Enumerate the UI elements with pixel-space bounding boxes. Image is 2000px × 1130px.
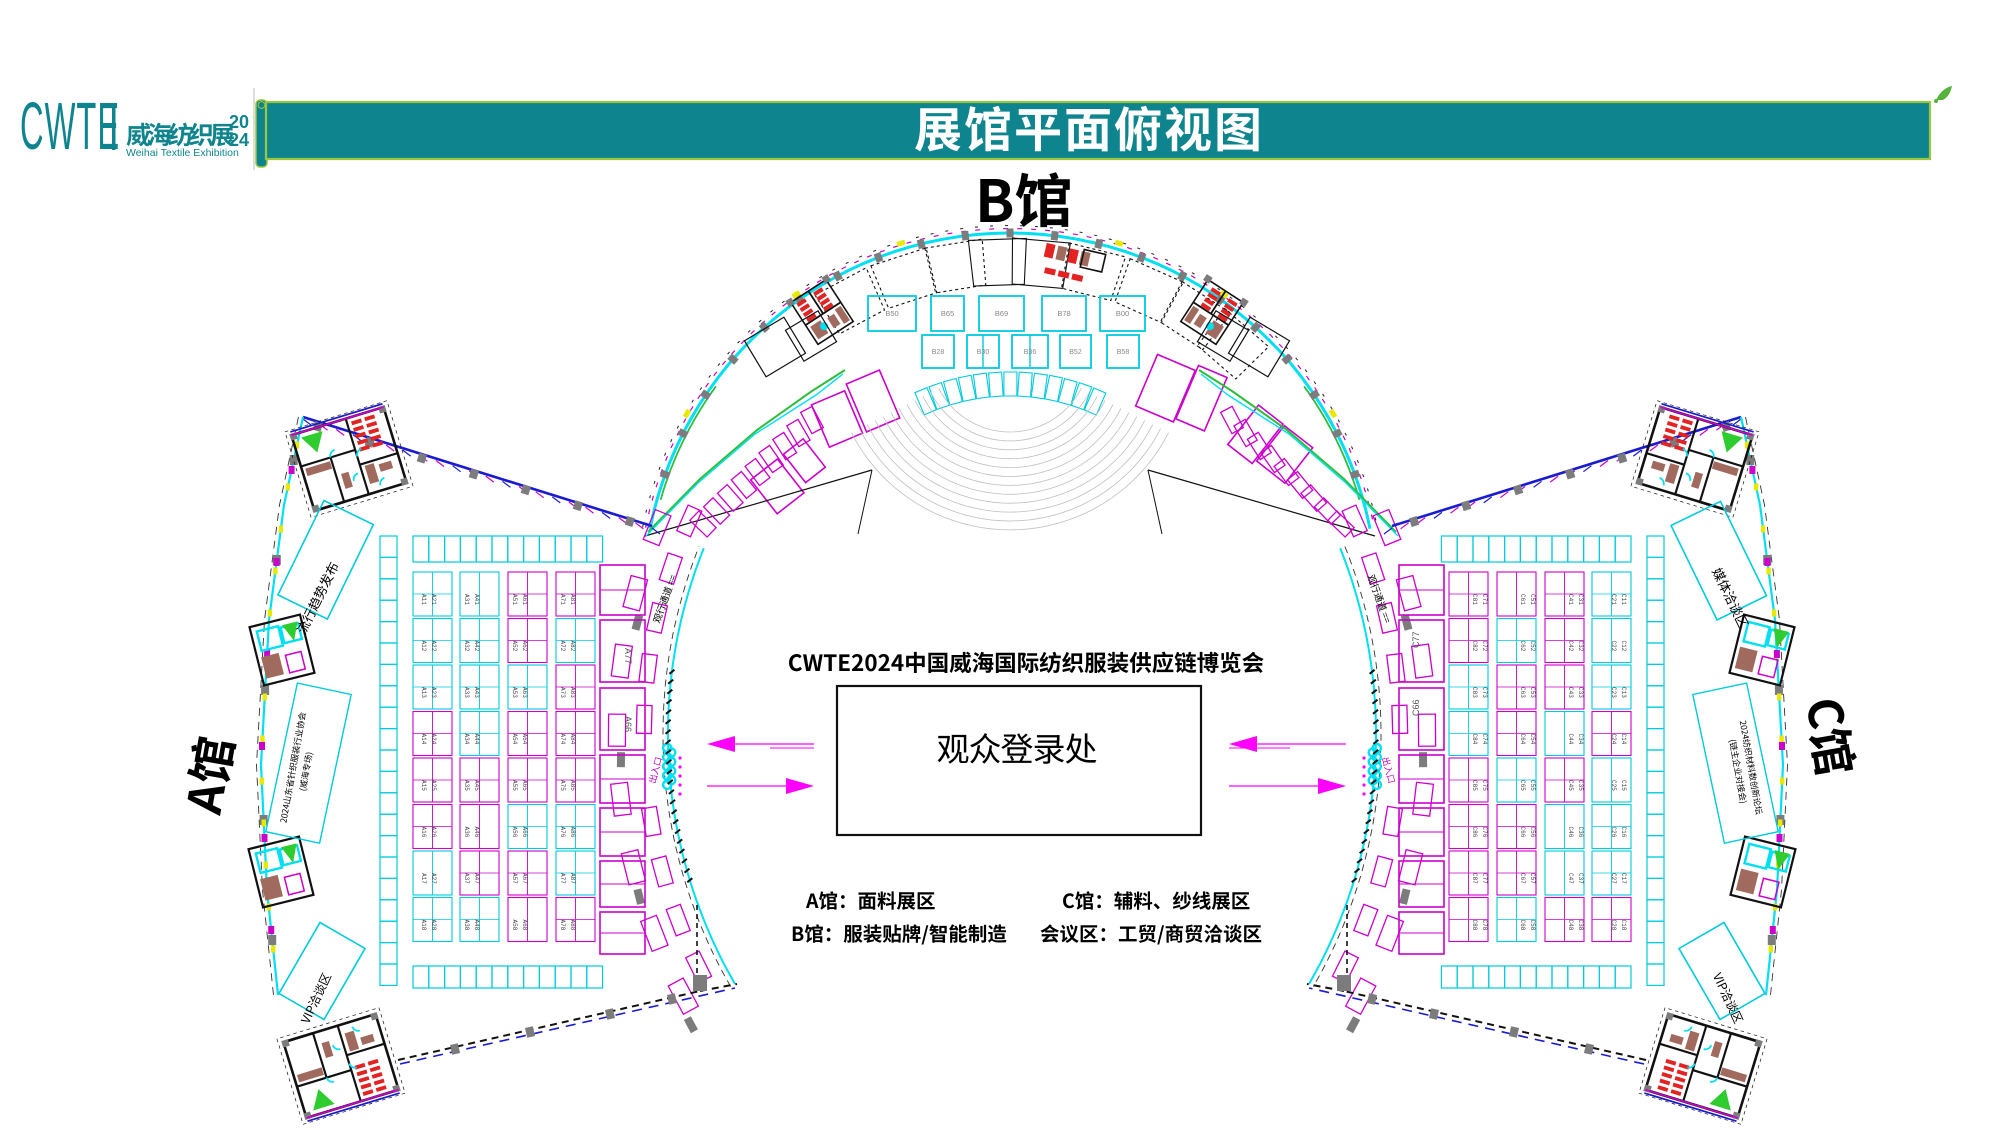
svg-text:A12: A12 — [420, 641, 427, 652]
svg-text:A18: A18 — [420, 920, 427, 931]
svg-text:C16: C16 — [1620, 827, 1627, 838]
svg-text:C22: C22 — [1610, 641, 1617, 652]
svg-text:C36: C36 — [1577, 827, 1584, 838]
svg-text:B50: B50 — [885, 309, 898, 318]
svg-text:A86: A86 — [569, 827, 576, 838]
svg-text:A26: A26 — [430, 827, 437, 838]
svg-text:C25: C25 — [1610, 780, 1617, 791]
svg-text:B30: B30 — [977, 349, 990, 356]
svg-text:C72: C72 — [1481, 641, 1488, 652]
svg-text:A66: A66 — [623, 716, 633, 732]
svg-text:C41: C41 — [1567, 594, 1574, 605]
svg-text:C82: C82 — [1471, 641, 1478, 652]
svg-text:C18: C18 — [1620, 920, 1627, 931]
svg-text:B52: B52 — [1069, 349, 1082, 356]
svg-text:C51: C51 — [1529, 594, 1536, 605]
svg-text:C65: C65 — [1519, 780, 1526, 791]
svg-text:C15: C15 — [1620, 780, 1627, 791]
svg-text:C33: C33 — [1577, 687, 1584, 698]
svg-text:A48: A48 — [473, 920, 480, 931]
svg-text:C48: C48 — [1567, 920, 1574, 931]
svg-text:C27: C27 — [1610, 873, 1617, 884]
svg-text:CWTE: CWTE — [20, 91, 120, 165]
svg-text:A25: A25 — [430, 780, 437, 791]
svg-text:C32: C32 — [1577, 641, 1584, 652]
svg-text:A56: A56 — [511, 827, 518, 838]
svg-text:C54: C54 — [1529, 734, 1536, 745]
svg-text:A45: A45 — [473, 780, 480, 791]
svg-text:A78: A78 — [559, 920, 566, 931]
svg-text:C66: C66 — [1519, 827, 1526, 838]
svg-text:A55: A55 — [511, 780, 518, 791]
svg-text:A76: A76 — [559, 827, 566, 838]
svg-text:A84: A84 — [569, 734, 576, 745]
svg-text:C66: C66 — [1411, 699, 1421, 716]
svg-text:A64: A64 — [521, 734, 528, 745]
svg-text:B36: B36 — [1024, 349, 1037, 356]
svg-text:C31: C31 — [1577, 594, 1584, 605]
svg-text:C68: C68 — [1519, 920, 1526, 931]
svg-text:A15: A15 — [420, 780, 427, 791]
svg-text:B65: B65 — [941, 309, 954, 318]
svg-text:A87: A87 — [569, 873, 576, 884]
svg-text:A82: A82 — [569, 641, 576, 652]
svg-text:A37: A37 — [463, 873, 470, 884]
svg-text:C46: C46 — [1567, 827, 1574, 838]
svg-text:A66: A66 — [521, 827, 528, 838]
svg-text:A16: A16 — [420, 827, 427, 838]
svg-text:C42: C42 — [1567, 641, 1574, 652]
svg-text:C17: C17 — [1620, 873, 1627, 884]
svg-text:C73: C73 — [1481, 687, 1488, 698]
svg-text:C84: C84 — [1471, 734, 1478, 745]
svg-text:A36: A36 — [463, 827, 470, 838]
svg-text:A33: A33 — [463, 687, 470, 698]
svg-text:C74: C74 — [1481, 734, 1488, 745]
svg-text:A67: A67 — [521, 873, 528, 884]
svg-text:A51: A51 — [511, 594, 518, 605]
svg-text:A31: A31 — [463, 594, 470, 605]
svg-text:B78: B78 — [1057, 309, 1070, 318]
svg-text:C23: C23 — [1610, 687, 1617, 698]
svg-text:A58: A58 — [511, 920, 518, 931]
svg-text:C58: C58 — [1529, 920, 1536, 931]
svg-text:A46: A46 — [473, 827, 480, 838]
svg-text:C77: C77 — [1481, 873, 1488, 884]
svg-text:C28: C28 — [1610, 920, 1617, 931]
svg-text:A63: A63 — [521, 687, 528, 698]
svg-text:A68: A68 — [521, 920, 528, 931]
svg-text:C55: C55 — [1529, 780, 1536, 791]
svg-text:C76: C76 — [1481, 827, 1488, 838]
svg-text:C45: C45 — [1567, 780, 1574, 791]
svg-text:C13: C13 — [1620, 687, 1627, 698]
svg-text:B00: B00 — [1116, 309, 1129, 318]
svg-text:A41: A41 — [473, 594, 480, 605]
svg-text:A83: A83 — [569, 687, 576, 698]
svg-text:C34: C34 — [1577, 734, 1584, 745]
svg-text:C62: C62 — [1519, 641, 1526, 652]
svg-text:C87: C87 — [1471, 873, 1478, 884]
svg-text:A72: A72 — [559, 641, 566, 652]
svg-text:A81: A81 — [569, 594, 576, 605]
svg-text:A35: A35 — [463, 780, 470, 791]
svg-text:A74: A74 — [559, 734, 566, 745]
svg-text:A43: A43 — [473, 687, 480, 698]
svg-text:C71: C71 — [1481, 594, 1488, 605]
svg-text:A62: A62 — [521, 641, 528, 652]
svg-text:A23: A23 — [430, 687, 437, 698]
svg-text:C77: C77 — [1411, 631, 1421, 648]
svg-text:C61: C61 — [1519, 594, 1526, 605]
svg-text:A34: A34 — [463, 734, 470, 745]
svg-text:A52: A52 — [511, 641, 518, 652]
svg-text:C75: C75 — [1481, 780, 1488, 791]
svg-text:A13: A13 — [420, 687, 427, 698]
svg-text:A77: A77 — [623, 648, 633, 664]
svg-text:C63: C63 — [1519, 687, 1526, 698]
svg-text:A11: A11 — [420, 594, 427, 605]
svg-text:A75: A75 — [559, 780, 566, 791]
svg-text:C35: C35 — [1577, 780, 1584, 791]
svg-text:A54: A54 — [511, 734, 518, 745]
svg-text:A88: A88 — [569, 920, 576, 931]
svg-text:C52: C52 — [1529, 641, 1536, 652]
svg-text:B69: B69 — [995, 309, 1008, 318]
svg-text:A57: A57 — [511, 873, 518, 884]
svg-text:A71: A71 — [559, 594, 566, 605]
svg-text:C86: C86 — [1471, 827, 1478, 838]
svg-text:A53: A53 — [511, 687, 518, 698]
svg-text:C81: C81 — [1471, 594, 1478, 605]
svg-text:A77: A77 — [559, 873, 566, 884]
svg-text:A65: A65 — [521, 780, 528, 791]
svg-text:B28: B28 — [932, 349, 945, 356]
svg-text:C78: C78 — [1481, 920, 1488, 931]
svg-text:A73: A73 — [559, 687, 566, 698]
svg-text:A85: A85 — [569, 780, 576, 791]
svg-text:C47: C47 — [1567, 873, 1574, 884]
svg-text:C44: C44 — [1567, 734, 1574, 745]
svg-text:A44: A44 — [473, 734, 480, 745]
svg-text:A27: A27 — [430, 873, 437, 884]
svg-text:A32: A32 — [463, 641, 470, 652]
svg-text:A24: A24 — [430, 734, 437, 745]
svg-text:A21: A21 — [430, 594, 437, 605]
svg-text:A47: A47 — [473, 873, 480, 884]
svg-text:C64: C64 — [1519, 734, 1526, 745]
svg-text:C26: C26 — [1610, 827, 1617, 838]
svg-text:A42: A42 — [473, 641, 480, 652]
svg-text:A61: A61 — [521, 594, 528, 605]
svg-text:C88: C88 — [1471, 920, 1478, 931]
svg-text:C67: C67 — [1519, 873, 1526, 884]
svg-text:C85: C85 — [1471, 780, 1478, 791]
svg-text:A28: A28 — [430, 920, 437, 931]
svg-text:20: 20 — [229, 112, 249, 132]
svg-text:A22: A22 — [430, 641, 437, 652]
svg-text:C56: C56 — [1529, 827, 1536, 838]
svg-text:C21: C21 — [1610, 594, 1617, 605]
svg-text:A17: A17 — [420, 873, 427, 884]
svg-text:C11: C11 — [1620, 594, 1627, 605]
svg-text:A38: A38 — [463, 920, 470, 931]
svg-text:C83: C83 — [1471, 687, 1478, 698]
svg-text:C43: C43 — [1567, 687, 1574, 698]
svg-text:C57: C57 — [1529, 873, 1536, 884]
svg-text:C12: C12 — [1620, 641, 1627, 652]
svg-text:C14: C14 — [1620, 734, 1627, 745]
svg-text:C38: C38 — [1577, 920, 1584, 931]
svg-text:A14: A14 — [420, 734, 427, 745]
svg-text:C37: C37 — [1577, 873, 1584, 884]
svg-text:B58: B58 — [1117, 349, 1130, 356]
svg-text:C24: C24 — [1610, 734, 1617, 745]
svg-text:Weihai Textile Exhibition: Weihai Textile Exhibition — [126, 147, 239, 159]
svg-text:C53: C53 — [1529, 687, 1536, 698]
